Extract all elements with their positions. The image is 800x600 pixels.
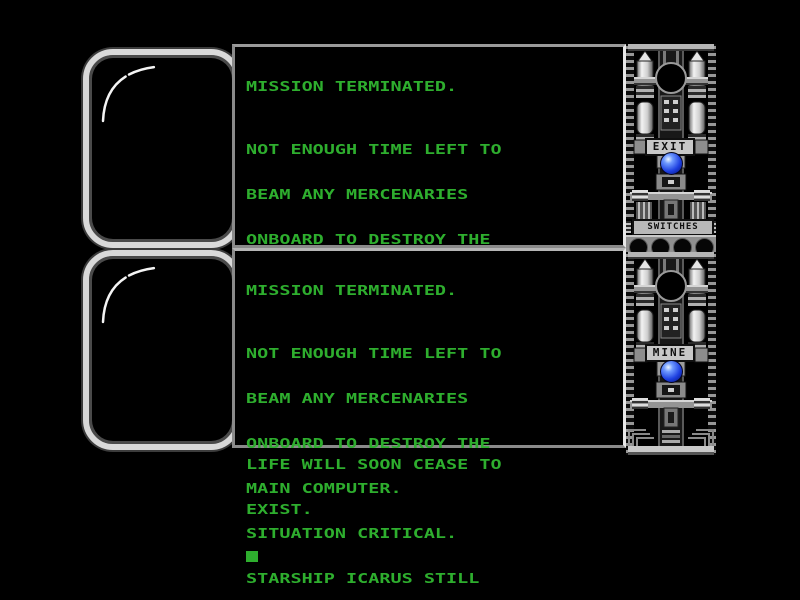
crt-screen-bottom [83, 250, 241, 450]
game-screen: MISSION TERMINATED. NOT ENOUGH TIME LEFT… [0, 0, 800, 600]
greeble-art-top [626, 44, 716, 219]
terminal-line: STARSHIP ICARUS STILL [246, 572, 779, 587]
screen-glare-icon [89, 256, 223, 444]
screen-glare-icon [89, 55, 223, 242]
terminal-line: MAIN COMPUTER. [246, 482, 779, 497]
switches-label: SWITCHES [632, 219, 714, 236]
switch-button[interactable] [629, 238, 648, 252]
crt-screen-top [83, 49, 241, 248]
switches-row [626, 235, 716, 252]
terminal-line: SITUATION CRITICAL. [246, 527, 779, 542]
terminal-window-top: MISSION TERMINATED. NOT ENOUGH TIME LEFT… [232, 44, 626, 248]
blue-ball-button-bottom[interactable] [660, 360, 683, 383]
switch-button[interactable] [651, 238, 670, 252]
terminal-text-bottom: MISSION TERMINATED. NOT ENOUGH TIME LEFT… [246, 254, 621, 600]
blue-ball-button-top[interactable] [660, 152, 683, 175]
switch-button[interactable] [673, 238, 692, 252]
vent-lines-icon [626, 221, 631, 233]
terminal-window-bottom: MISSION TERMINATED. NOT ENOUGH TIME LEFT… [232, 248, 626, 448]
switch-button[interactable] [695, 238, 714, 252]
